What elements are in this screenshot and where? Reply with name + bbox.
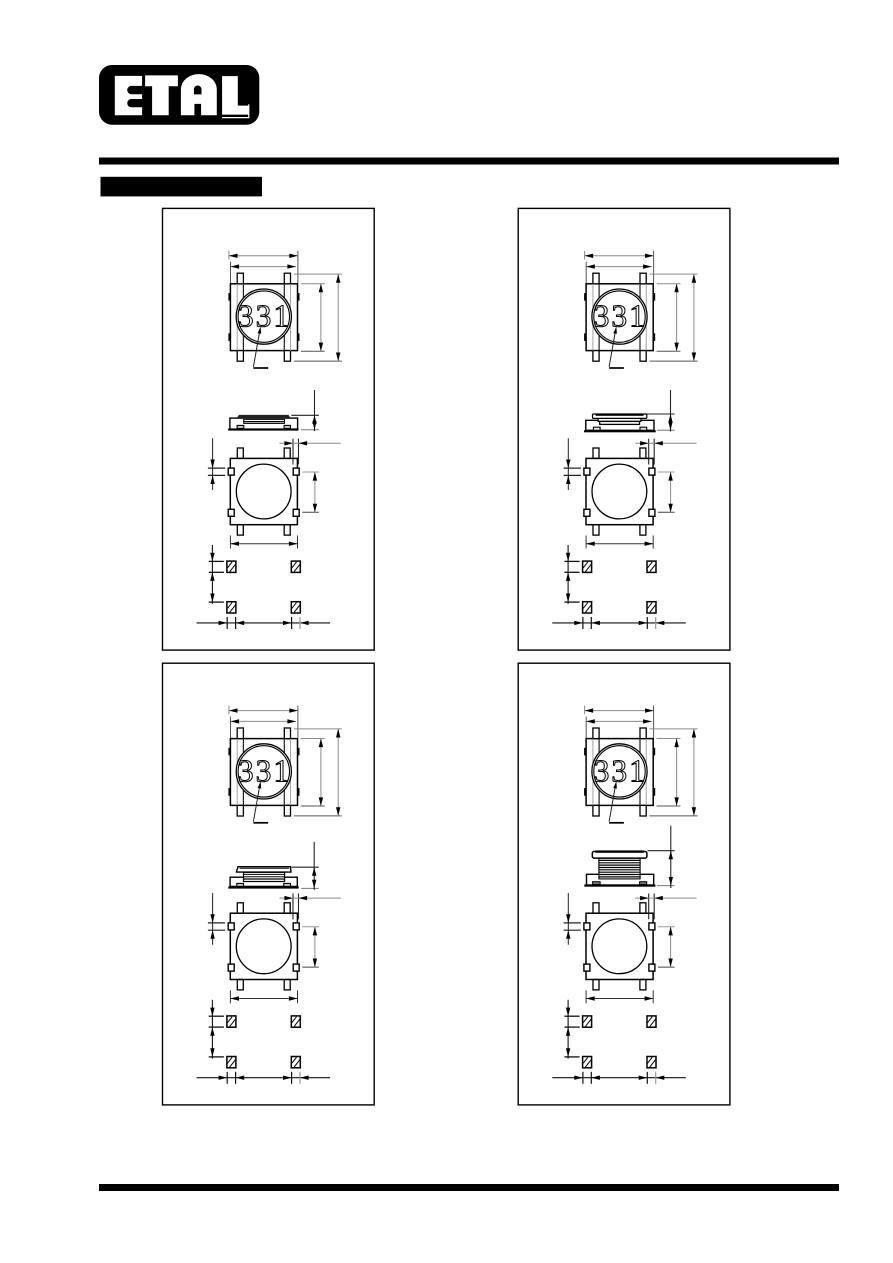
svg-text:331: 331 [594, 753, 647, 788]
svg-text:331: 331 [238, 753, 291, 788]
svg-text:331: 331 [594, 299, 647, 334]
svg-text:331: 331 [238, 299, 291, 334]
